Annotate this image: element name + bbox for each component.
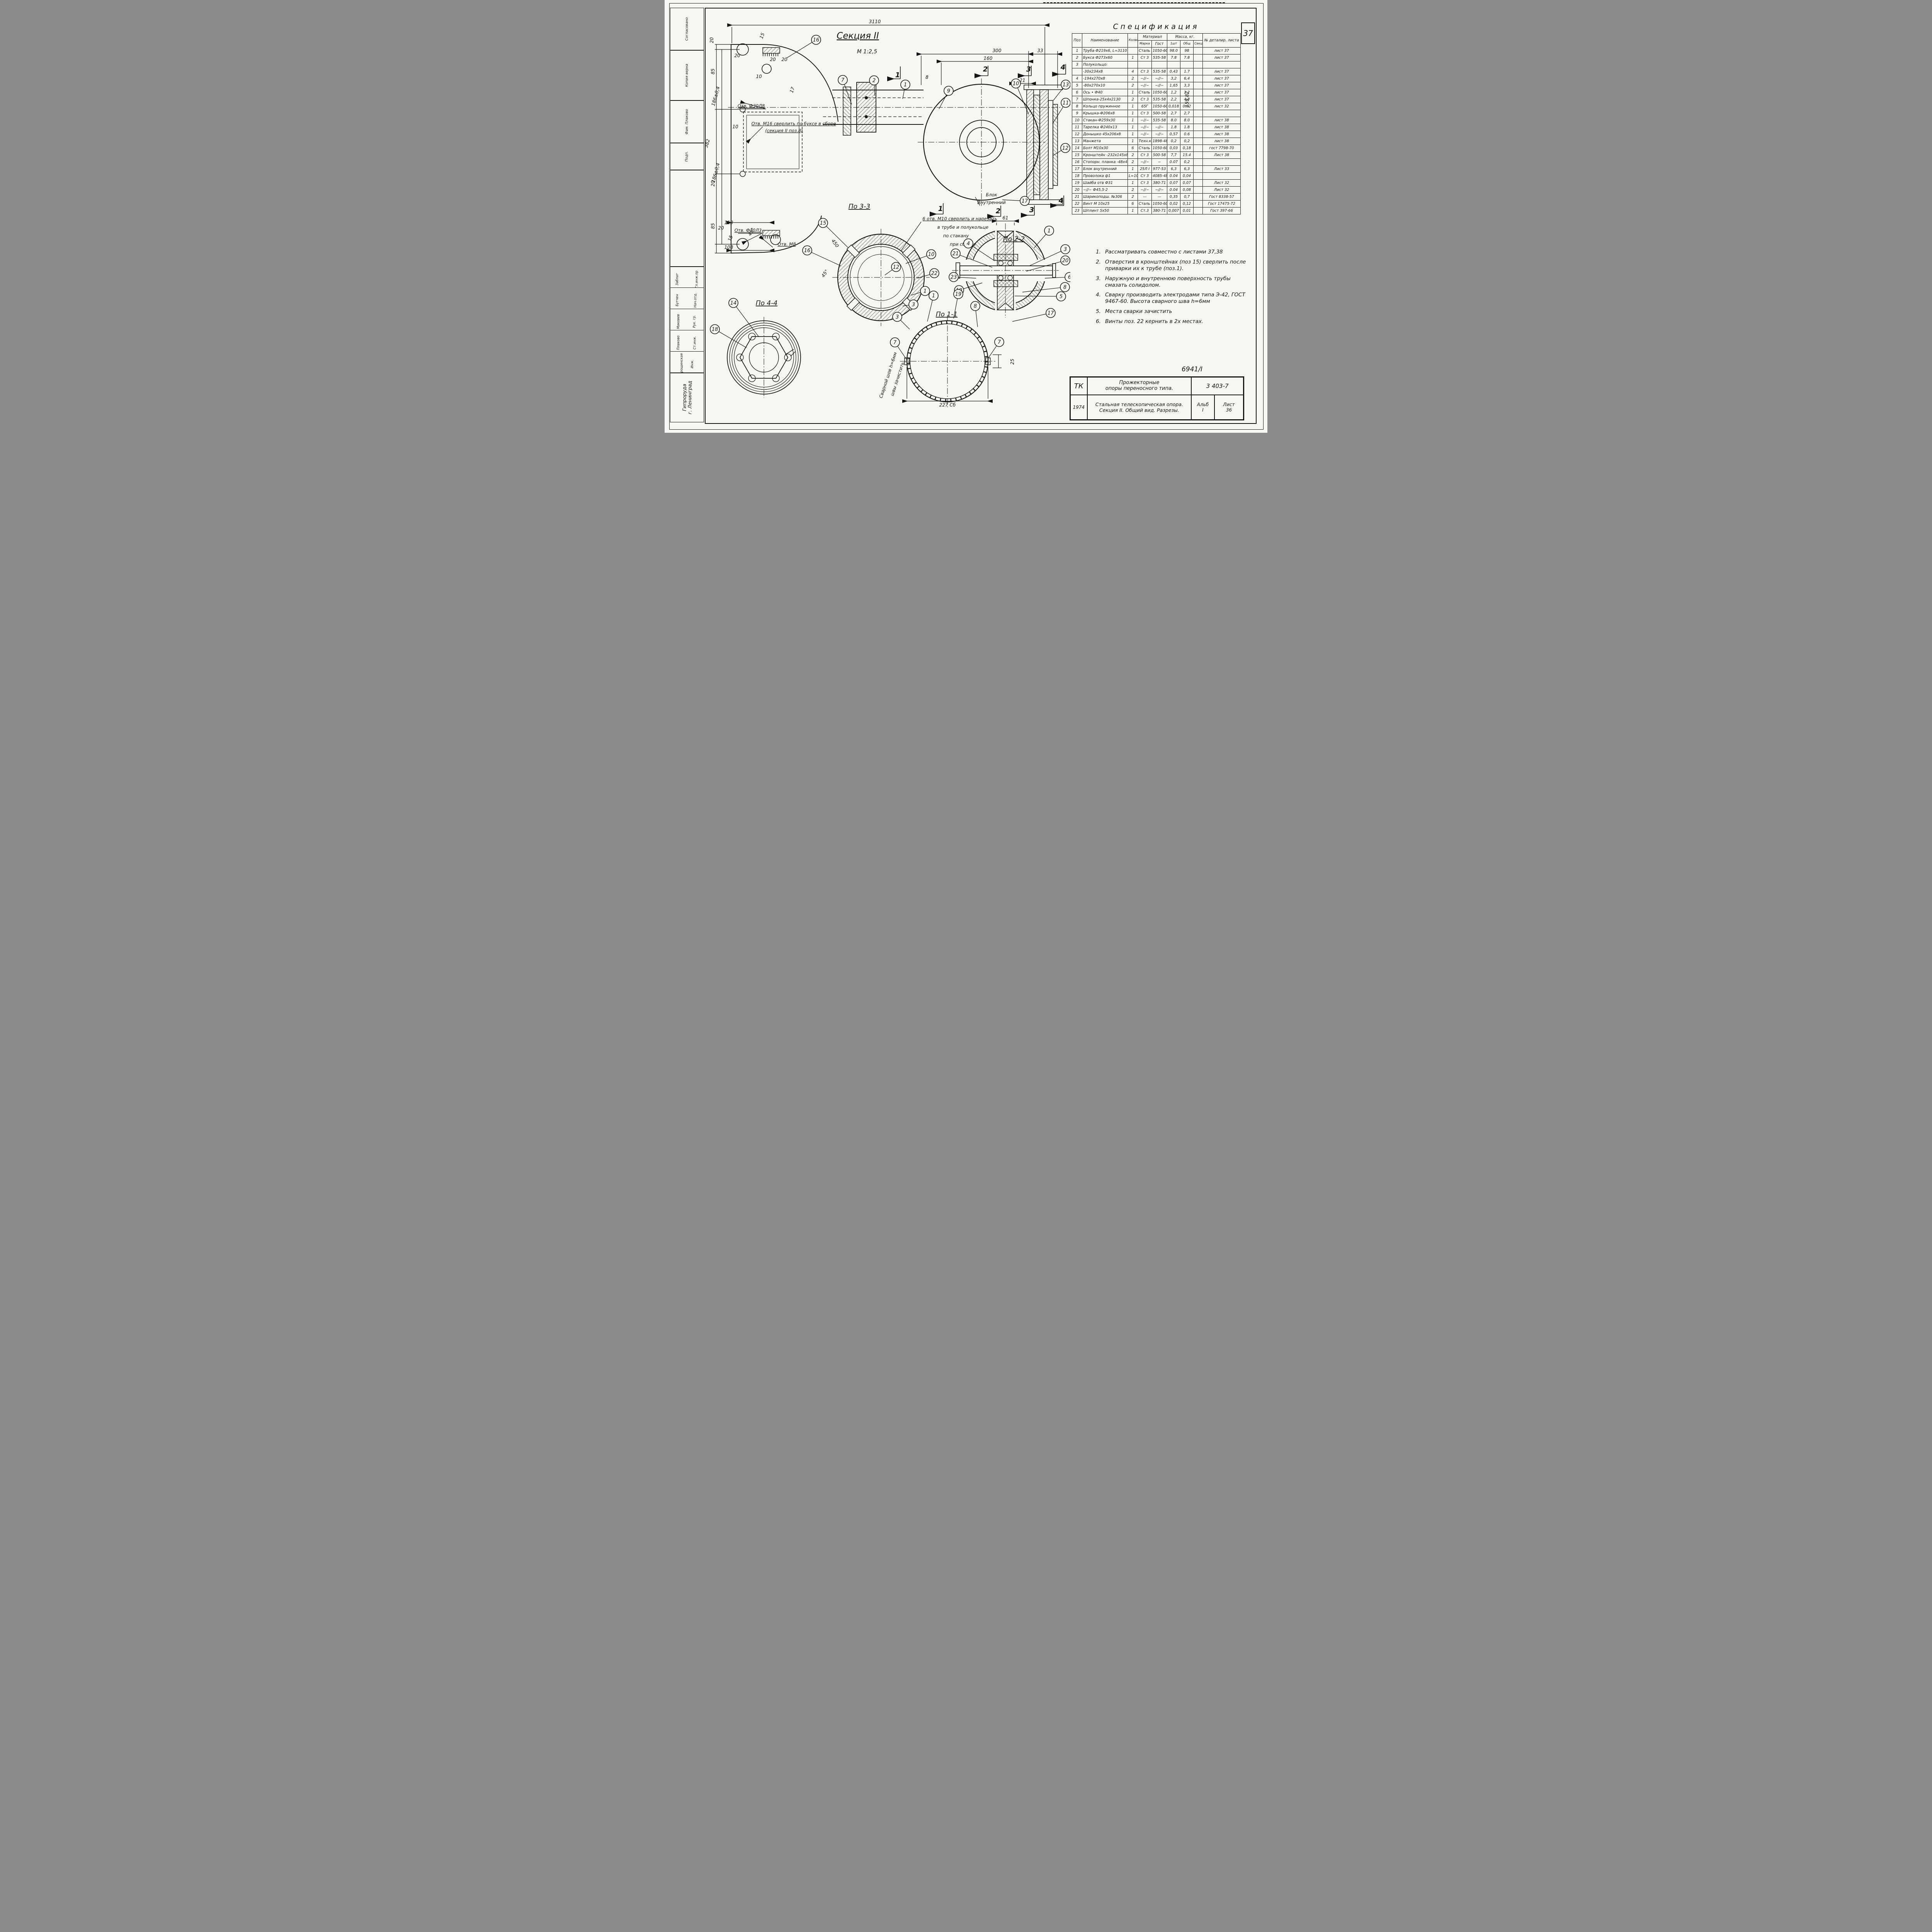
spec-cell: [1194, 187, 1203, 194]
spec-cell: 2: [1128, 96, 1138, 103]
project-name-cell: Прожекторные опоры переносного типа.: [1087, 377, 1192, 395]
spec-row: 13Манжета1Техн.кожа1898-480,20,2лист 38: [1072, 138, 1241, 145]
spec-cell: 1898-48: [1152, 138, 1167, 145]
spec-cell: 11: [1072, 124, 1082, 131]
spec-cell: 1: [1128, 103, 1138, 110]
stamp-role: Ст.инж.: [693, 336, 697, 349]
spec-row: 2Букса Ф273х601Ст 3535-587.87.8лист 37: [1072, 54, 1241, 61]
spec-cell: 0,35: [1167, 194, 1180, 201]
spec-cell: [1194, 61, 1203, 68]
annotation-text: Блок: [986, 192, 997, 197]
spec-cell: лист 37: [1203, 75, 1241, 82]
spec-cell: Стопорн. планка -48х48·16: [1082, 159, 1128, 166]
spec-cell: [1194, 173, 1203, 180]
spec-cell: 0,43: [1167, 68, 1180, 75]
spec-cell: 500-58: [1152, 152, 1167, 159]
callout-number: 8: [974, 304, 977, 310]
spec-cell: 6,3: [1167, 166, 1180, 173]
spec-cell: Стакан-Ф259х30: [1082, 117, 1128, 124]
notes-list: 1.Рассматривать совместно с листами 37,3…: [1096, 249, 1250, 328]
weld-seam: [986, 358, 990, 365]
callout-number: 12: [1062, 146, 1069, 151]
spec-cell: Гост 397-66: [1203, 207, 1241, 214]
sidebar-cell-fam: Фам. Плаково: [670, 100, 704, 143]
spec-table: Поз Наименование Колво Материал Масса, к…: [1072, 33, 1241, 214]
callout-leader: [787, 42, 812, 58]
spec-cell: [1194, 117, 1203, 124]
spec-cell: 1050-60: [1152, 89, 1167, 96]
view-titles: Секция IIМ 1:2,5: [837, 31, 879, 55]
col-header-qty: Колво: [1128, 34, 1138, 48]
spec-cell: Блок внутренний: [1082, 166, 1128, 173]
spec-cell: Кольцо пружинное: [1082, 103, 1128, 110]
spec-cell: 0,07: [1167, 180, 1180, 187]
drawing-name-cell: Стальная телескопическая опора. Секция I…: [1087, 395, 1192, 420]
spec-cell: [1194, 110, 1203, 117]
spec-cell: [1180, 61, 1194, 68]
spec-cell: [1194, 145, 1203, 152]
callout-leader: [719, 332, 747, 348]
callout-number: 22: [931, 271, 938, 277]
dimension-label: 85: [710, 223, 716, 229]
callout-number: 20: [1062, 258, 1069, 264]
spec-row: 7Шпонка-25х4х21302Ст 3535-582,24,4лист 3…: [1072, 96, 1241, 103]
spec-cell: 2: [1128, 187, 1138, 194]
spec-cell: Шайба отв Ф31: [1082, 180, 1128, 187]
dimension-label: 20: [709, 37, 714, 43]
spec-cell: 15.4: [1180, 152, 1194, 159]
drawing-title: Секция II: [837, 31, 879, 41]
spec-cell: —: [1152, 194, 1167, 201]
spec-cell: 1050-60: [1152, 145, 1167, 152]
spec-cell: 21: [1072, 194, 1082, 201]
section-1-1: [900, 315, 995, 408]
spec-row: 4-194х270х82−//−−//−3,26,4лист 37: [1072, 75, 1241, 82]
section-cut-number: 4: [1058, 197, 1064, 205]
dimension-label: 33: [1037, 48, 1043, 53]
spec-cell: 3: [1072, 61, 1082, 68]
drawing-scale: М 1:2,5: [857, 49, 878, 55]
spec-cell: Ст 3: [1138, 96, 1152, 103]
spec-cell: 0,007: [1167, 207, 1180, 214]
spec-cell: Лист 33: [1203, 166, 1241, 173]
spec-cell: 0.04: [1167, 173, 1180, 180]
spec-cell: 535-58: [1152, 117, 1167, 124]
org-code-cell: ТК: [1070, 377, 1087, 395]
spec-cell: [1194, 75, 1203, 82]
spec-cell: 6: [1072, 89, 1082, 96]
spec-cell: 1: [1128, 89, 1138, 96]
spec-cell: Лист 32: [1203, 180, 1241, 187]
spec-cell: —: [1138, 194, 1152, 201]
section-cut-number: 2: [996, 207, 1001, 215]
spec-cell: 98.0: [1167, 48, 1180, 54]
stamp-row: Ст.инж.Плаково: [670, 330, 704, 352]
section-cut-number: 1: [895, 71, 900, 79]
dimension-label: 108: [724, 245, 733, 250]
dimension-label: 450: [830, 238, 840, 248]
main-drawing: Секция IIМ 1:2,5 По 3-3По 2-2По 4-4По 1-…: [705, 8, 1070, 422]
spec-row: 14Болт М10х306Сталь 451050-600,030,18гос…: [1072, 145, 1241, 152]
callout-number: 7: [841, 78, 845, 83]
spec-cell: Сталь 20: [1138, 48, 1152, 54]
sidebar-cell-empty: [670, 170, 704, 267]
spec-cell: 8.0: [1167, 117, 1180, 124]
spec-cell: 1,65: [1167, 82, 1180, 89]
section-label: По 3-3: [849, 203, 870, 211]
callout-number: 17: [1048, 311, 1054, 316]
callout-number: 13: [1063, 82, 1069, 88]
spec-cell: Ст 3: [1138, 180, 1152, 187]
spec-cell: 0,018: [1167, 103, 1180, 110]
spec-cell: 12: [1072, 131, 1082, 138]
spec-cell: 2: [1072, 54, 1082, 61]
callout-number: 2: [872, 78, 876, 84]
sidebar-label: Фам. Плаково: [685, 109, 689, 134]
spec-cell: 500-58: [1152, 110, 1167, 117]
spec-cell: Донышко 45х206х8: [1082, 131, 1128, 138]
spec-cell: 380-71: [1152, 207, 1167, 214]
spec-cell: −//− Ф45,5·2: [1082, 187, 1128, 194]
spec-cell: −//−: [1138, 82, 1152, 89]
bearing: [994, 281, 1018, 287]
spec-cell: 1: [1072, 48, 1082, 54]
sidebar-cell-soglasovano: Согласовано: [670, 8, 704, 50]
callout-number: 16: [804, 248, 811, 254]
spec-cell: [1167, 61, 1180, 68]
callout-number: 4: [967, 241, 970, 247]
spec-cell: [1194, 54, 1203, 61]
stamp-role: Нач.отд.: [694, 293, 697, 308]
sidebar-cell-kopia: Копия верна: [670, 50, 704, 100]
spec-cell: 1: [1128, 54, 1138, 61]
spec-row: 20−//− Ф45,5·22−//−−//−0.040,08Лист 32: [1072, 187, 1241, 194]
callout-number: 1: [904, 82, 907, 88]
dimension-label: 300: [993, 48, 1002, 53]
dimension-label: 10: [756, 74, 762, 79]
annotation-text: 6 отв. М10 сверлить и нарезать: [922, 216, 997, 221]
spec-cell: 23: [1072, 207, 1082, 214]
spec-cell: Сталь 45: [1138, 89, 1152, 96]
stamp-role: Рук. гр.: [693, 315, 697, 328]
flange-face: [918, 78, 1045, 206]
spec-cell: лист 38: [1203, 131, 1241, 138]
spec-cell: [1194, 89, 1203, 96]
callout-leader: [976, 311, 978, 327]
spec-cell: [1203, 173, 1241, 180]
spec-cell: лист 32: [1203, 103, 1241, 110]
spec-cell: 2: [1128, 152, 1138, 159]
spec-row: 6Ось • Ф401Сталь 451050-601,21,2лист 37: [1072, 89, 1241, 96]
spec-cell: [1194, 96, 1203, 103]
spec-cell: −//−: [1152, 187, 1167, 194]
callout-number: 11: [1063, 100, 1069, 106]
spec-cell: лист 37: [1203, 68, 1241, 75]
spec-cell: [1194, 124, 1203, 131]
col-header-1sht: 1шт: [1167, 41, 1180, 48]
callout-number: 1: [932, 293, 935, 299]
spec-cell: 19: [1072, 180, 1082, 187]
spec-cell: Ось • Ф40: [1082, 89, 1128, 96]
spec-cell: L=100см: [1128, 173, 1138, 180]
spec-cell: 1: [1128, 117, 1138, 124]
spec-cell: [1138, 61, 1152, 68]
spec-cell: 1: [1128, 124, 1138, 131]
spec-cell: −//−: [1152, 124, 1167, 131]
spec-cell: [1194, 68, 1203, 75]
spec-cell: 7,7: [1167, 152, 1180, 159]
section-3-3: [832, 229, 930, 326]
spec-cell: -30х234х8: [1082, 68, 1128, 75]
spec-cell: Болт М10х30: [1082, 145, 1128, 152]
callout-number: 19: [955, 292, 962, 298]
col-header-sekc: Секц: [1194, 41, 1203, 48]
stamp-name: Маковев: [677, 314, 680, 329]
note-item: 5.Места сварки зачистить: [1096, 308, 1250, 315]
dimension-label: 3110: [869, 19, 881, 24]
dimension-label: 61: [1002, 215, 1008, 221]
spec-cell: −//−: [1138, 159, 1152, 166]
callout-number: 21: [952, 251, 959, 257]
spec-row: 17Блок внутренний125Л I977-536,36,3Лист …: [1072, 166, 1241, 173]
spec-cell: Сталь 45: [1138, 145, 1152, 152]
note-text: Места сварки зачистить: [1105, 308, 1172, 315]
spec-row: 8Кольцо пружинное165Г1050-600,0180,02лис…: [1072, 103, 1241, 110]
spec-cell: Ст 3: [1138, 54, 1152, 61]
spec-cell: 1: [1128, 110, 1138, 117]
spec-cell: 7.8: [1180, 54, 1194, 61]
spec-cell: лист 37: [1203, 96, 1241, 103]
spec-cell: [1194, 207, 1203, 214]
spec-cell: 0,02: [1167, 201, 1180, 207]
spec-cell: Ст 3: [1138, 110, 1152, 117]
annotation-text: Отв. Ф30Л8: [738, 103, 765, 109]
spec-cell: −//−: [1138, 75, 1152, 82]
sidebar-label: Копия верна: [685, 64, 689, 87]
spec-cell: 0,2: [1167, 138, 1180, 145]
spec-row: 22Винт М 10х256Сталь 201050-600,020,12Го…: [1072, 201, 1241, 207]
col-header-gost: Гост: [1152, 41, 1167, 48]
spec-cell: 0.04: [1167, 187, 1180, 194]
spec-cell: 0.07: [1167, 159, 1180, 166]
callout-leader: [1053, 88, 1063, 100]
callout-number: 8: [1063, 285, 1066, 291]
section-cut-number: 3: [1029, 206, 1034, 214]
spec-cell: 98: [1180, 48, 1194, 54]
callout-leader: [927, 300, 932, 321]
spec-cell: лист 37: [1203, 54, 1241, 61]
spec-cell: 16: [1072, 159, 1082, 166]
callout-number: 15: [820, 221, 827, 226]
dimension-label: 15: [759, 32, 765, 39]
col-header-obsh: Общ: [1180, 41, 1194, 48]
spec-cell: [1128, 61, 1138, 68]
dimension-label: 20: [770, 57, 776, 62]
callout-number: 3: [896, 315, 899, 320]
callout-leader: [811, 252, 841, 266]
note-number: 5.: [1096, 308, 1105, 315]
spec-section-total: 159,82: [1184, 70, 1190, 128]
callout-leader: [898, 346, 906, 359]
callout-leader: [900, 320, 910, 329]
spec-cell: Манжета: [1082, 138, 1128, 145]
callout-number: 16: [813, 37, 820, 43]
spec-cell: Полукольцо:: [1082, 61, 1128, 68]
spec-cell: Крышка-Ф206х8: [1082, 110, 1128, 117]
spec-cell: 1,2: [1167, 89, 1180, 96]
spec-cell: -80х270х10: [1082, 82, 1128, 89]
spec-row: 16Стопорн. планка -48х48·162−//−−0.070,2: [1072, 159, 1241, 166]
sidebar-cell-podp: Подп.: [670, 143, 704, 170]
spec-cell: [1194, 201, 1203, 207]
spec-cell: 0,7: [1180, 194, 1194, 201]
spec-cell: 3,2: [1167, 75, 1180, 82]
spec-cell: 2,2: [1167, 96, 1180, 103]
spec-cell: 4085-48: [1152, 173, 1167, 180]
col-header-pos: Поз: [1072, 34, 1082, 48]
spec-cell: Кронштейн -232х145х8: [1082, 152, 1128, 159]
spec-cell: 9: [1072, 110, 1082, 117]
annotation-text: Отв. М8: [777, 241, 796, 247]
spec-cell: 6,3: [1180, 166, 1194, 173]
callout-number: 10: [1013, 81, 1019, 87]
spec-row: 10Стакан-Ф259х301−//−535-588.08.0лист 38: [1072, 117, 1241, 124]
spec-cell: −: [1152, 159, 1167, 166]
spec-cell: 1: [1128, 166, 1138, 173]
org-name: Гипроруда г. Ленинград: [682, 381, 692, 415]
spec-cell: 7: [1072, 96, 1082, 103]
spec-cell: Лист 38: [1203, 152, 1241, 159]
spec-cell: 535-58: [1152, 96, 1167, 103]
spec-cell: [1203, 110, 1241, 117]
spec-cell: Винт М 10х25: [1082, 201, 1128, 207]
spec-cell: 0,07: [1180, 180, 1194, 187]
spec-cell: 25Л I: [1138, 166, 1152, 173]
spec-row: 19Шайба отв Ф311Ст 3380-710,070,07Лист 3…: [1072, 180, 1241, 187]
callout-number: 1: [1048, 228, 1051, 234]
spec-row: 3Полукольцо:: [1072, 61, 1241, 68]
stamp-name: Заблат: [675, 273, 679, 286]
spec-cell: 5: [1072, 82, 1082, 89]
spec-cell: 1050-60: [1152, 103, 1167, 110]
sheet-corner-number: 37: [1241, 22, 1255, 44]
col-header-material: Материал: [1138, 34, 1167, 41]
spec-cell: 2: [1128, 75, 1138, 82]
dimension-label: 15: [727, 235, 734, 242]
dimension-label: 85: [710, 68, 716, 74]
section-label: По 2-2: [1003, 235, 1025, 243]
dimension-label: 25: [1010, 359, 1015, 364]
stamp-name: Плаково: [677, 335, 680, 350]
spec-cell: 0,03: [1167, 145, 1180, 152]
col-header-massa: Масса, кг.: [1167, 34, 1203, 41]
spec-cell: лист 37: [1203, 89, 1241, 96]
spec-cell: 0,2: [1180, 159, 1194, 166]
callout-number: 18: [712, 327, 718, 333]
spec-cell: [1194, 48, 1203, 54]
spec-cell: 1.8: [1167, 124, 1180, 131]
spec-cell: 1: [1128, 131, 1138, 138]
dimension-label: 113: [724, 220, 733, 225]
callout-number: 10: [928, 252, 935, 258]
annotation-text: Отв. Ф30Л3: [735, 228, 762, 233]
year-cell: 1974: [1070, 395, 1087, 420]
spec-cell: 535-58: [1152, 54, 1167, 61]
note-item: 6.Винты поз. 22 кернить в 2х местах.: [1096, 318, 1250, 325]
spec-cell: [1194, 82, 1203, 89]
spec-cell: лист 37: [1203, 82, 1241, 89]
annotation-text: Внутренний: [977, 200, 1006, 205]
spec-cell: [1194, 138, 1203, 145]
spec-cell: Шпонка-25х4х2130: [1082, 96, 1128, 103]
callout-number: 7: [893, 340, 897, 346]
spec-row: 5-80х270х102−//−−//−1,653,3лист 37: [1072, 82, 1241, 89]
bearing: [994, 254, 1018, 260]
spec-cell: 2: [1128, 82, 1138, 89]
drawing-sheet: Согласовано Копия верна Фам. Плаково Под…: [665, 0, 1267, 433]
sheet-cell: Лист 36: [1214, 395, 1243, 420]
spec-cell: 535-58: [1152, 68, 1167, 75]
stamp-row: Нач.отд.Бутчен: [670, 288, 704, 309]
stamp-row: Инж.Трощинская: [670, 352, 704, 373]
spec-cell: 0,08: [1180, 187, 1194, 194]
spec-cell: [1194, 166, 1203, 173]
dimension-label: 382: [705, 138, 711, 148]
spec-cell: Тарелка Ф240х13: [1082, 124, 1128, 131]
spec-cell: 1050-60: [1152, 48, 1167, 54]
spec-cell: 4: [1128, 68, 1138, 75]
spec-cell: 6: [1128, 201, 1138, 207]
note-item: 1.Рассматривать совместно с листами 37,3…: [1096, 249, 1250, 255]
stamp-row: Рук. гр.Маковев: [670, 309, 704, 330]
document-number: 6941/I: [1144, 366, 1240, 373]
spec-cell: −//−: [1138, 117, 1152, 124]
dimension-label: 17: [789, 86, 796, 94]
dimension-label: 186±0,4: [711, 86, 721, 107]
col-header-sheets: № деталир. листа: [1203, 34, 1241, 48]
note-number: 4.: [1096, 292, 1105, 305]
sidebar-org-cell: Гипроруда г. Ленинград: [670, 373, 704, 422]
spec-cell: Сталь 20: [1138, 201, 1152, 207]
spec-cell: 1: [1128, 207, 1138, 214]
spec-cell: лист 37: [1203, 48, 1241, 54]
spec-cell: лист 38: [1203, 138, 1241, 145]
callout-leader: [988, 346, 997, 358]
stamp-role: Инж.: [690, 360, 694, 368]
callout-number: 9: [947, 88, 950, 94]
album-cell: Альб I: [1191, 395, 1214, 420]
spec-cell: −//−: [1152, 131, 1167, 138]
spec-table-wrap: Спецификация Поз Наименование Колво Мате…: [1072, 22, 1240, 214]
spec-cell: Букса Ф273х60: [1082, 54, 1128, 61]
note-number: 6.: [1096, 318, 1105, 325]
spec-cell: 1: [1128, 138, 1138, 145]
spec-cell: 22: [1072, 201, 1082, 207]
stamp-name: Трощинская: [680, 353, 684, 373]
spec-cell: Шарикоподш. №306: [1082, 194, 1128, 201]
spec-cell: гост 7798-70: [1203, 145, 1241, 152]
spec-cell: 0,18: [1180, 145, 1194, 152]
spec-cell: 20: [1072, 187, 1082, 194]
spec-cell: [1194, 103, 1203, 110]
sidebar-label: Согласовано: [685, 17, 689, 41]
section-label: По 4-4: [756, 299, 777, 307]
spec-cell: лист 38: [1203, 124, 1241, 131]
spec-cell: [1194, 152, 1203, 159]
spec-row: 11Тарелка Ф240х131−//−−//−1.81.8лист 38: [1072, 124, 1241, 131]
spec-cell: 6: [1128, 145, 1138, 152]
spec-cell: −//−: [1152, 75, 1167, 82]
